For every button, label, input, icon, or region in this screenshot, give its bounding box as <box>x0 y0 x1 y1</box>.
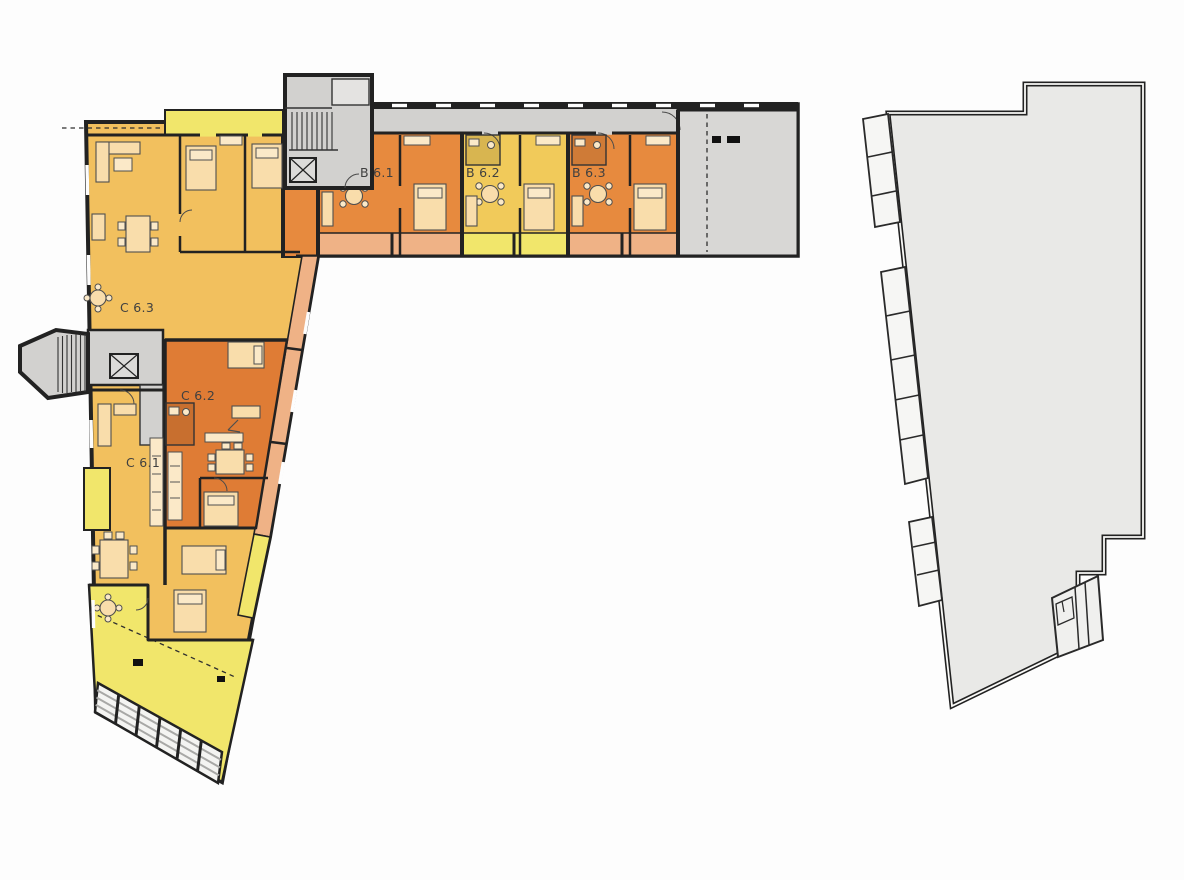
bed <box>634 184 666 230</box>
duct-marker <box>727 136 740 143</box>
elevator-icon <box>110 354 138 378</box>
bed <box>524 184 554 230</box>
bed <box>182 546 226 574</box>
elevator-icon <box>290 158 316 182</box>
balcony-c63 <box>165 110 283 135</box>
unit-label-b63: B 6.3 <box>572 165 606 180</box>
duct-marker <box>712 136 721 143</box>
staircase-icon <box>58 334 85 393</box>
bed <box>174 590 206 632</box>
bed <box>228 342 264 368</box>
utility-block <box>662 110 798 256</box>
unit-label-c62: C 6.2 <box>181 388 215 403</box>
bed <box>186 146 216 190</box>
stair-core-north <box>285 75 372 188</box>
bed <box>414 184 446 230</box>
terrace-marker <box>217 676 225 682</box>
building-adjacent-outline <box>863 84 1143 706</box>
bed <box>252 144 282 188</box>
unit-b61-entry <box>285 188 318 256</box>
building-main: B 6.1 B 6.2 B 6.3 C 6.1 C 6.2 C 6.3 <box>20 75 798 783</box>
balcony-b61 <box>318 233 462 256</box>
unit-label-b62: B 6.2 <box>466 165 500 180</box>
terrace-marker <box>133 659 143 666</box>
balcony-c61-west <box>84 468 110 530</box>
unit-label-c61: C 6.1 <box>126 455 160 470</box>
unit-label-b61: B 6.1 <box>360 165 394 180</box>
floor-plan-page: B 6.1 B 6.2 B 6.3 C 6.1 C 6.2 C 6.3 <box>0 0 1184 880</box>
unit-label-c63: C 6.3 <box>120 300 154 315</box>
adjacent-footprint <box>888 84 1143 706</box>
floor-plan-canvas: B 6.1 B 6.2 B 6.3 C 6.1 C 6.2 C 6.3 <box>0 0 1184 880</box>
bed <box>204 492 238 526</box>
